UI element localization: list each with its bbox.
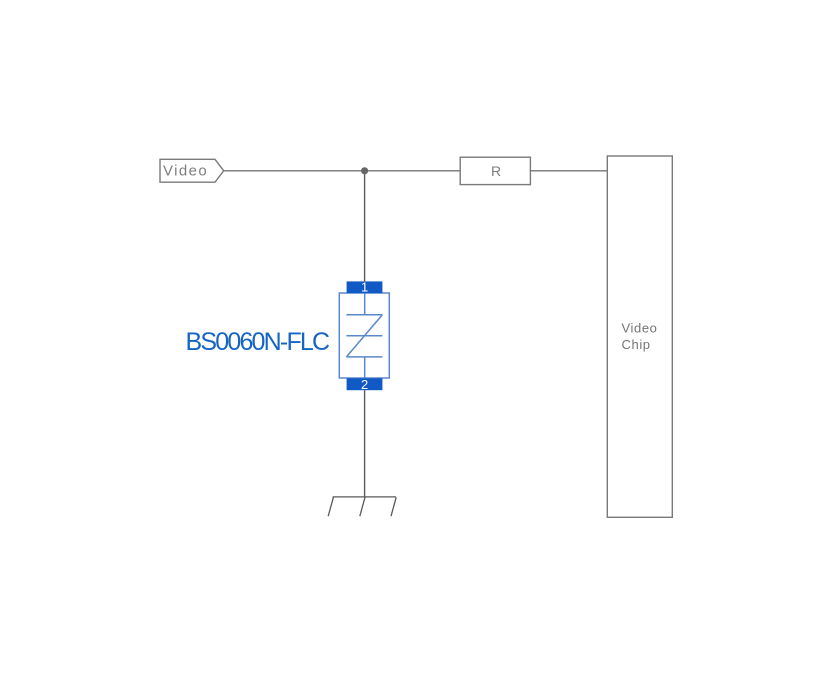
svg-text:1: 1 xyxy=(361,280,368,295)
svg-text:R: R xyxy=(491,163,501,179)
svg-text:BS0060N-FLC: BS0060N-FLC xyxy=(186,328,331,356)
svg-text:Video: Video xyxy=(622,320,658,335)
svg-text:Chip: Chip xyxy=(622,337,651,352)
svg-text:Video: Video xyxy=(163,162,208,179)
svg-text:2: 2 xyxy=(361,377,368,392)
